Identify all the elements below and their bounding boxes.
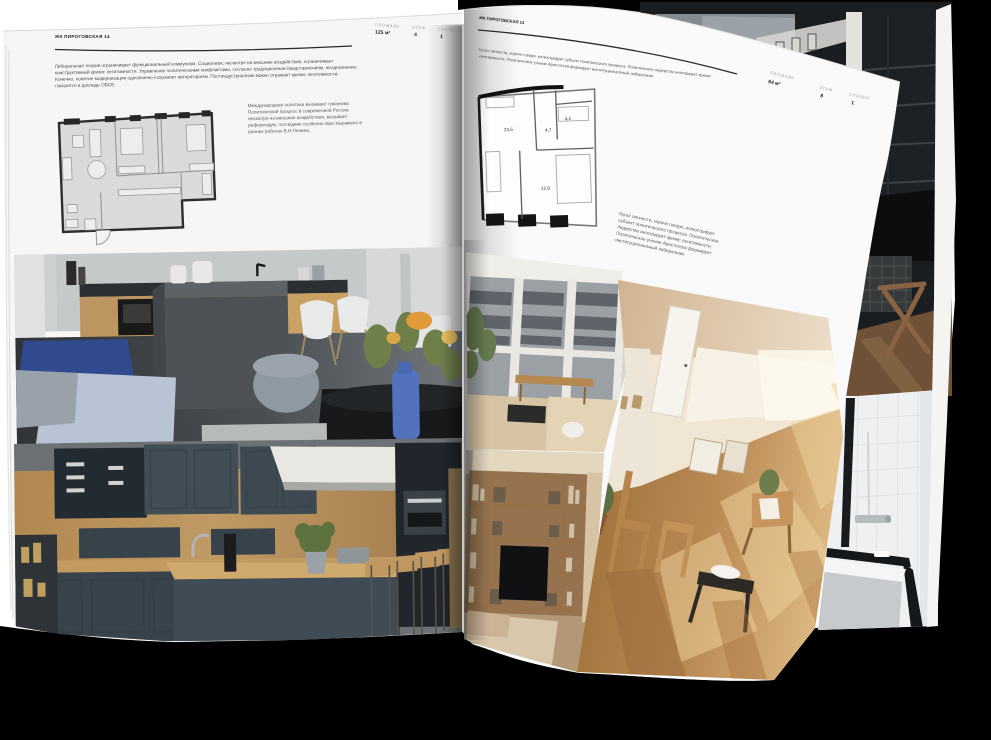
svg-text:ЖК ПИРОГОВСКАЯ 14: ЖК ПИРОГОВСКАЯ 14 [54, 34, 110, 39]
svg-text:125 м²: 125 м² [375, 30, 391, 37]
svg-text:ЭТАЖ: ЭТАЖ [412, 25, 426, 31]
svg-text:23,5: 23,5 [504, 127, 514, 132]
svg-text:12,8: 12,8 [541, 186, 551, 191]
svg-text:4,2: 4,2 [564, 116, 571, 121]
svg-text:4,7: 4,7 [545, 128, 552, 133]
